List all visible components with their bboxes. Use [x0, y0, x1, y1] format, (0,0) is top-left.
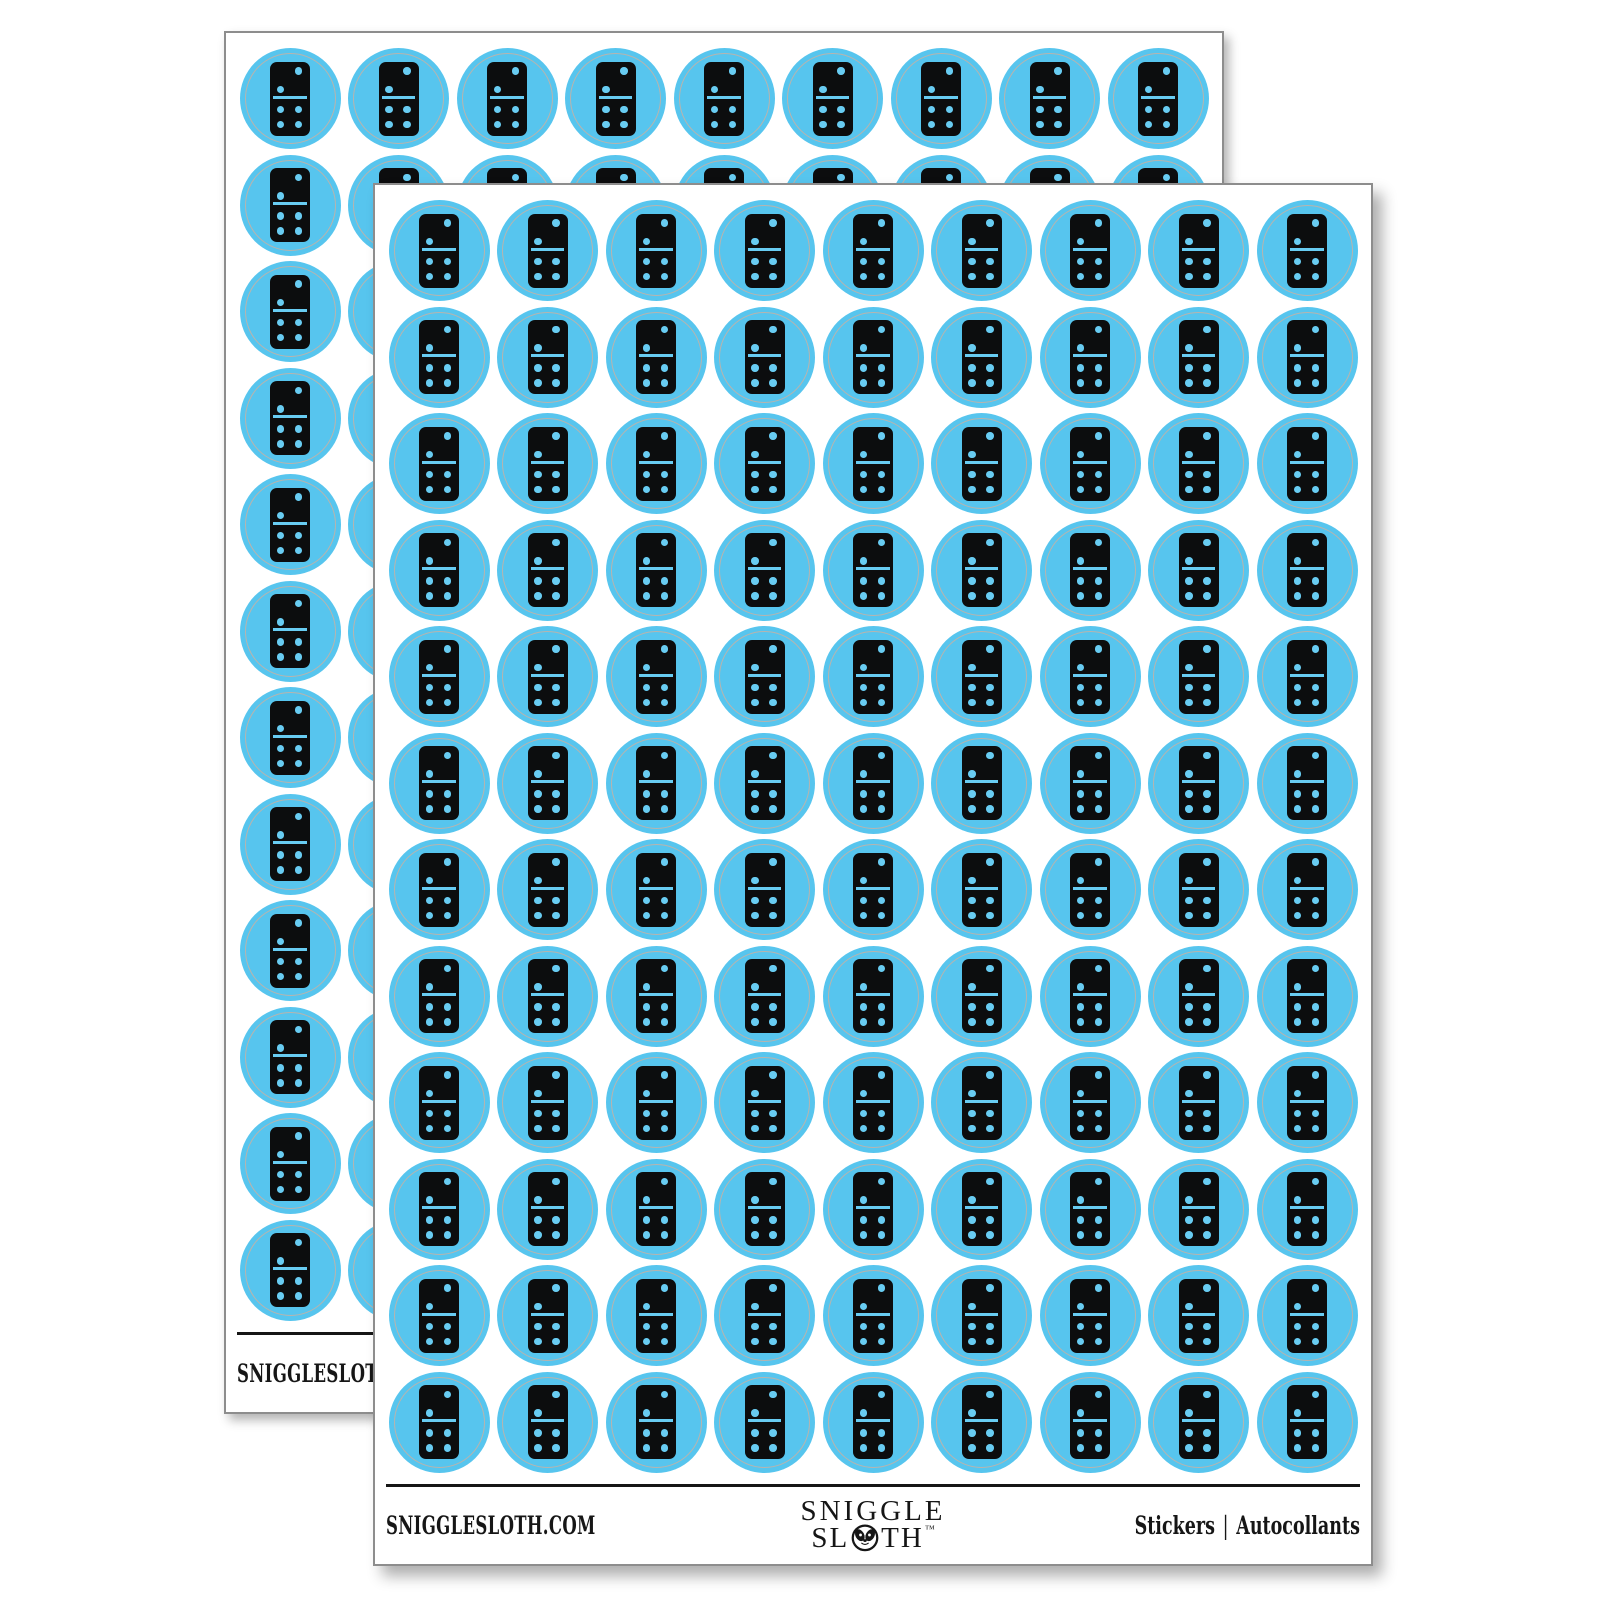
sticker — [497, 200, 598, 301]
sticker — [497, 1052, 598, 1153]
domino-pip — [552, 577, 560, 585]
domino-pip — [837, 67, 845, 75]
domino-pip — [385, 121, 393, 129]
domino-pip — [1095, 965, 1103, 973]
domino-pip — [1203, 364, 1211, 372]
sticker — [240, 155, 341, 256]
domino-pip — [426, 770, 434, 778]
sticker — [497, 520, 598, 621]
domino-pip — [1095, 790, 1103, 798]
domino-pip — [968, 1338, 976, 1346]
domino-pip — [1036, 106, 1044, 114]
domino-2-4-icon — [962, 746, 1002, 820]
domino-2-4-icon — [528, 533, 568, 607]
domino-pip — [1095, 1018, 1103, 1026]
domino-pip — [751, 451, 759, 459]
domino-pip — [1077, 1003, 1085, 1011]
domino-divider — [531, 1419, 565, 1422]
domino-2-4-icon — [419, 746, 459, 820]
domino-pip — [968, 1216, 976, 1224]
sticker — [1148, 1159, 1249, 1260]
domino-pip — [986, 326, 994, 334]
domino-pip — [1095, 897, 1103, 905]
domino-divider — [816, 96, 850, 99]
domino-2-4-icon — [745, 1385, 785, 1459]
domino-pip — [295, 387, 303, 395]
domino-pip — [968, 1323, 976, 1331]
domino-pip — [426, 983, 434, 991]
domino-pip — [661, 897, 669, 905]
domino-divider — [748, 780, 782, 783]
domino-pip — [878, 486, 886, 494]
domino-pip — [860, 258, 868, 266]
domino-pip — [1077, 273, 1085, 281]
domino-pip — [837, 174, 845, 182]
domino-pip — [751, 344, 759, 352]
domino-divider — [531, 461, 565, 464]
domino-divider — [639, 887, 673, 890]
sticker — [823, 839, 924, 940]
domino-divider — [639, 1100, 673, 1103]
domino-pip — [494, 86, 502, 94]
domino-pip — [1312, 577, 1320, 585]
domino-pip — [968, 877, 976, 885]
domino-2-4-icon — [1179, 640, 1219, 714]
domino-pip — [968, 273, 976, 281]
domino-pip — [860, 1409, 868, 1417]
domino-pip — [1312, 326, 1320, 334]
sticker — [606, 1159, 707, 1260]
domino-pip — [986, 1110, 994, 1118]
sticker — [389, 200, 490, 301]
domino-pip — [426, 344, 434, 352]
domino-pip — [295, 547, 303, 555]
domino-2-4-icon — [745, 214, 785, 288]
domino-pip — [426, 364, 434, 372]
domino-2-4-icon — [419, 533, 459, 607]
domino-pip — [602, 106, 610, 114]
domino-divider — [639, 1206, 673, 1209]
domino-pip — [444, 273, 452, 281]
domino-pip — [729, 174, 737, 182]
sticker — [1257, 1265, 1358, 1366]
domino-divider — [422, 887, 456, 890]
domino-pip — [729, 67, 737, 75]
domino-divider — [639, 1419, 673, 1422]
sticker — [389, 1265, 490, 1366]
domino-pip — [751, 1216, 759, 1224]
domino-pip — [1095, 471, 1103, 479]
sticker — [714, 1372, 815, 1473]
domino-pip — [277, 121, 285, 129]
domino-2-4-icon — [636, 1172, 676, 1246]
domino-2-4-icon — [1070, 1172, 1110, 1246]
domino-pip — [620, 121, 628, 129]
sticker-sheet-front: SNIGGLESLOTH.COM SNIGGLE SL TH ™ Sticker — [373, 183, 1373, 1566]
domino-2-4-icon — [853, 1385, 893, 1459]
domino-2-4-icon — [813, 62, 853, 136]
sticker — [606, 733, 707, 834]
domino-divider — [1290, 993, 1324, 996]
sticker — [931, 733, 1032, 834]
domino-pip — [878, 432, 886, 440]
domino-pip — [534, 1196, 542, 1204]
domino-divider — [1182, 993, 1216, 996]
domino-2-4-icon — [270, 1127, 310, 1201]
domino-pip — [1095, 364, 1103, 372]
domino-pip — [986, 1284, 994, 1292]
sticker — [1040, 413, 1141, 514]
domino-pip — [1294, 486, 1302, 494]
domino-divider — [531, 354, 565, 357]
domino-pip — [643, 1323, 651, 1331]
domino-pip — [928, 106, 936, 114]
domino-pip — [1036, 121, 1044, 129]
sticker — [823, 1265, 924, 1366]
domino-pip — [986, 486, 994, 494]
domino-2-4-icon — [1179, 427, 1219, 501]
domino-divider — [748, 1206, 782, 1209]
domino-2-4-icon — [636, 746, 676, 820]
domino-pip — [1294, 897, 1302, 905]
domino-pip — [819, 121, 827, 129]
domino-divider — [1182, 354, 1216, 357]
domino-pip — [643, 451, 651, 459]
domino-pip — [1203, 1338, 1211, 1346]
domino-pip — [1312, 1338, 1320, 1346]
sticker — [1257, 413, 1358, 514]
domino-pip — [1077, 983, 1085, 991]
domino-pip — [552, 699, 560, 707]
domino-pip — [1163, 106, 1171, 114]
domino-2-4-icon — [1179, 320, 1219, 394]
domino-pip — [1294, 1338, 1302, 1346]
domino-2-4-icon — [636, 1385, 676, 1459]
domino-2-4-icon — [962, 320, 1002, 394]
domino-pip — [837, 106, 845, 114]
domino-pip — [1077, 1216, 1085, 1224]
page-background: { "image_type": "sticker-sheet-product-m… — [0, 0, 1600, 1600]
domino-pip — [1203, 577, 1211, 585]
domino-pip — [968, 897, 976, 905]
domino-pip — [1077, 664, 1085, 672]
domino-pip — [534, 1323, 542, 1331]
domino-pip — [1312, 1391, 1320, 1399]
domino-2-4-icon — [1070, 214, 1110, 288]
domino-pip — [1185, 1444, 1193, 1452]
domino-divider — [1073, 887, 1107, 890]
domino-2-4-icon — [853, 959, 893, 1033]
domino-pip — [1312, 1231, 1320, 1239]
domino-pip — [277, 760, 285, 768]
domino-pip — [751, 1196, 759, 1204]
sticker — [1040, 307, 1141, 408]
sticker — [1148, 1372, 1249, 1473]
domino-divider — [748, 1100, 782, 1103]
domino-pip — [860, 1429, 868, 1437]
domino-pip — [1095, 379, 1103, 387]
domino-pip — [1185, 1231, 1193, 1239]
domino-pip — [1095, 1003, 1103, 1011]
domino-pip — [1294, 238, 1302, 246]
domino-divider — [273, 841, 307, 844]
domino-pip — [1185, 1338, 1193, 1346]
sticker — [565, 48, 666, 149]
domino-pip — [968, 790, 976, 798]
domino-divider — [490, 96, 524, 99]
domino-pip — [534, 805, 542, 813]
domino-pip — [1185, 684, 1193, 692]
domino-pip — [769, 645, 777, 653]
domino-pip — [295, 227, 303, 235]
domino-2-4-icon — [745, 853, 785, 927]
domino-pip — [552, 645, 560, 653]
domino-pip — [968, 557, 976, 565]
domino-pip — [1203, 805, 1211, 813]
domino-pip — [277, 1257, 285, 1265]
domino-2-4-icon — [1179, 214, 1219, 288]
domino-pip — [860, 592, 868, 600]
domino-divider — [748, 887, 782, 890]
domino-divider — [639, 674, 673, 677]
domino-pip — [426, 1429, 434, 1437]
domino-pip — [552, 1231, 560, 1239]
sticker — [1257, 1372, 1358, 1473]
sticker — [1148, 307, 1249, 408]
domino-pip — [1312, 539, 1320, 547]
domino-pip — [643, 790, 651, 798]
sticker — [389, 733, 490, 834]
domino-pip — [751, 877, 759, 885]
domino-pip — [295, 813, 303, 821]
sticker — [1148, 946, 1249, 1047]
domino-2-4-icon — [487, 62, 527, 136]
domino-pip — [444, 1003, 452, 1011]
domino-2-4-icon — [528, 746, 568, 820]
domino-pip — [661, 1018, 669, 1026]
domino-pip — [946, 106, 954, 114]
domino-2-4-icon — [528, 1066, 568, 1140]
domino-pip — [661, 1391, 669, 1399]
domino-pip — [277, 1064, 285, 1072]
domino-pip — [426, 577, 434, 585]
domino-pip — [426, 592, 434, 600]
sticker — [1257, 307, 1358, 408]
domino-pip — [552, 364, 560, 372]
domino-pip — [661, 1444, 669, 1452]
domino-2-4-icon — [1179, 533, 1219, 607]
domino-pip — [1185, 1303, 1193, 1311]
domino-pip — [986, 1391, 994, 1399]
domino-pip — [661, 1284, 669, 1292]
domino-pip — [1312, 1125, 1320, 1133]
domino-2-4-icon — [1179, 746, 1219, 820]
domino-2-4-icon — [636, 320, 676, 394]
domino-divider — [422, 1206, 456, 1209]
domino-divider — [422, 354, 456, 357]
domino-pip — [552, 379, 560, 387]
domino-pip — [751, 1444, 759, 1452]
domino-pip — [426, 1409, 434, 1417]
domino-pip — [968, 684, 976, 692]
domino-divider — [1290, 354, 1324, 357]
domino-pip — [1077, 1196, 1085, 1204]
domino-pip — [1185, 344, 1193, 352]
domino-pip — [986, 364, 994, 372]
domino-pip — [534, 897, 542, 905]
sticker — [240, 261, 341, 362]
domino-pip — [534, 238, 542, 246]
domino-pip — [643, 1003, 651, 1011]
sticker — [1148, 413, 1249, 514]
domino-pip — [1294, 983, 1302, 991]
domino-pip — [661, 699, 669, 707]
domino-2-4-icon — [419, 1385, 459, 1459]
domino-pip — [1312, 1429, 1320, 1437]
domino-divider — [1182, 1313, 1216, 1316]
domino-pip — [860, 238, 868, 246]
domino-pip — [444, 965, 452, 973]
domino-pip — [860, 451, 868, 459]
domino-divider — [273, 522, 307, 525]
domino-divider — [1290, 1206, 1324, 1209]
domino-pip — [444, 539, 452, 547]
sticker — [1148, 520, 1249, 621]
domino-pip — [277, 1277, 285, 1285]
domino-pip — [860, 1110, 868, 1118]
domino-pip — [1095, 1125, 1103, 1133]
domino-divider — [965, 1313, 999, 1316]
sticker — [714, 946, 815, 1047]
sticker — [1040, 839, 1141, 940]
domino-2-4-icon — [1287, 1279, 1327, 1353]
domino-pip — [534, 1409, 542, 1417]
sticker — [240, 1220, 341, 1321]
domino-2-4-icon — [921, 62, 961, 136]
sticker — [1148, 839, 1249, 940]
domino-pip — [277, 547, 285, 555]
domino-pip — [444, 752, 452, 760]
domino-pip — [661, 858, 669, 866]
sticker — [823, 626, 924, 727]
domino-pip — [878, 684, 886, 692]
domino-pip — [751, 805, 759, 813]
domino-divider — [1073, 248, 1107, 251]
domino-pip — [643, 684, 651, 692]
domino-2-4-icon — [1138, 62, 1178, 136]
domino-pip — [968, 258, 976, 266]
domino-divider — [422, 1313, 456, 1316]
domino-pip — [860, 1338, 868, 1346]
domino-pip — [661, 326, 669, 334]
domino-divider — [639, 567, 673, 570]
domino-pip — [643, 364, 651, 372]
domino-divider — [1182, 1100, 1216, 1103]
domino-2-4-icon — [528, 959, 568, 1033]
domino-pip — [643, 471, 651, 479]
domino-pip — [860, 1216, 868, 1224]
domino-divider — [1033, 96, 1067, 99]
domino-divider — [856, 461, 890, 464]
domino-pip — [986, 645, 994, 653]
domino-pip — [643, 1444, 651, 1452]
domino-pip — [968, 1090, 976, 1098]
domino-pip — [878, 1071, 886, 1079]
domino-pip — [986, 684, 994, 692]
domino-pip — [534, 1303, 542, 1311]
domino-pip — [968, 364, 976, 372]
domino-pip — [986, 965, 994, 973]
domino-2-4-icon — [379, 62, 419, 136]
domino-pip — [444, 1178, 452, 1186]
domino-pip — [1294, 451, 1302, 459]
domino-pip — [1185, 699, 1193, 707]
domino-pip — [860, 1125, 868, 1133]
domino-pip — [1185, 1216, 1193, 1224]
domino-pip — [860, 684, 868, 692]
domino-pip — [878, 858, 886, 866]
domino-pip — [295, 280, 303, 288]
product-type-label: Stickers | Autocollants — [1135, 1511, 1360, 1540]
domino-pip — [751, 238, 759, 246]
sticker — [1148, 200, 1249, 301]
domino-2-4-icon — [962, 1385, 1002, 1459]
domino-pip — [512, 106, 520, 114]
domino-2-4-icon — [636, 959, 676, 1033]
domino-pip — [878, 1216, 886, 1224]
domino-pip — [751, 1338, 759, 1346]
domino-pip — [986, 1429, 994, 1437]
domino-pip — [444, 219, 452, 227]
domino-pip — [878, 897, 886, 905]
domino-pip — [860, 364, 868, 372]
domino-pip — [1312, 1323, 1320, 1331]
domino-pip — [444, 1018, 452, 1026]
domino-divider — [1290, 1419, 1324, 1422]
domino-pip — [1095, 1391, 1103, 1399]
domino-pip — [1185, 1003, 1193, 1011]
domino-pip — [1185, 486, 1193, 494]
domino-pip — [1185, 364, 1193, 372]
domino-pip — [444, 699, 452, 707]
domino-pip — [661, 1323, 669, 1331]
domino-pip — [552, 965, 560, 973]
domino-pip — [1077, 1429, 1085, 1437]
sticker — [240, 794, 341, 895]
domino-2-4-icon — [270, 275, 310, 349]
sticker — [606, 839, 707, 940]
sticker — [457, 48, 558, 149]
domino-pip — [1077, 770, 1085, 778]
domino-pip — [837, 121, 845, 129]
domino-pip — [426, 486, 434, 494]
domino-pip — [552, 486, 560, 494]
domino-pip — [1203, 1071, 1211, 1079]
domino-pip — [986, 1071, 994, 1079]
domino-divider — [1290, 1100, 1324, 1103]
sticker — [891, 48, 992, 149]
domino-pip — [643, 238, 651, 246]
domino-divider — [639, 993, 673, 996]
domino-pip — [295, 121, 303, 129]
domino-pip — [928, 86, 936, 94]
domino-2-4-icon — [1287, 746, 1327, 820]
domino-pip — [1077, 877, 1085, 885]
domino-pip — [986, 1178, 994, 1186]
domino-pip — [552, 1391, 560, 1399]
domino-pip — [643, 1338, 651, 1346]
domino-pip — [1203, 1429, 1211, 1437]
